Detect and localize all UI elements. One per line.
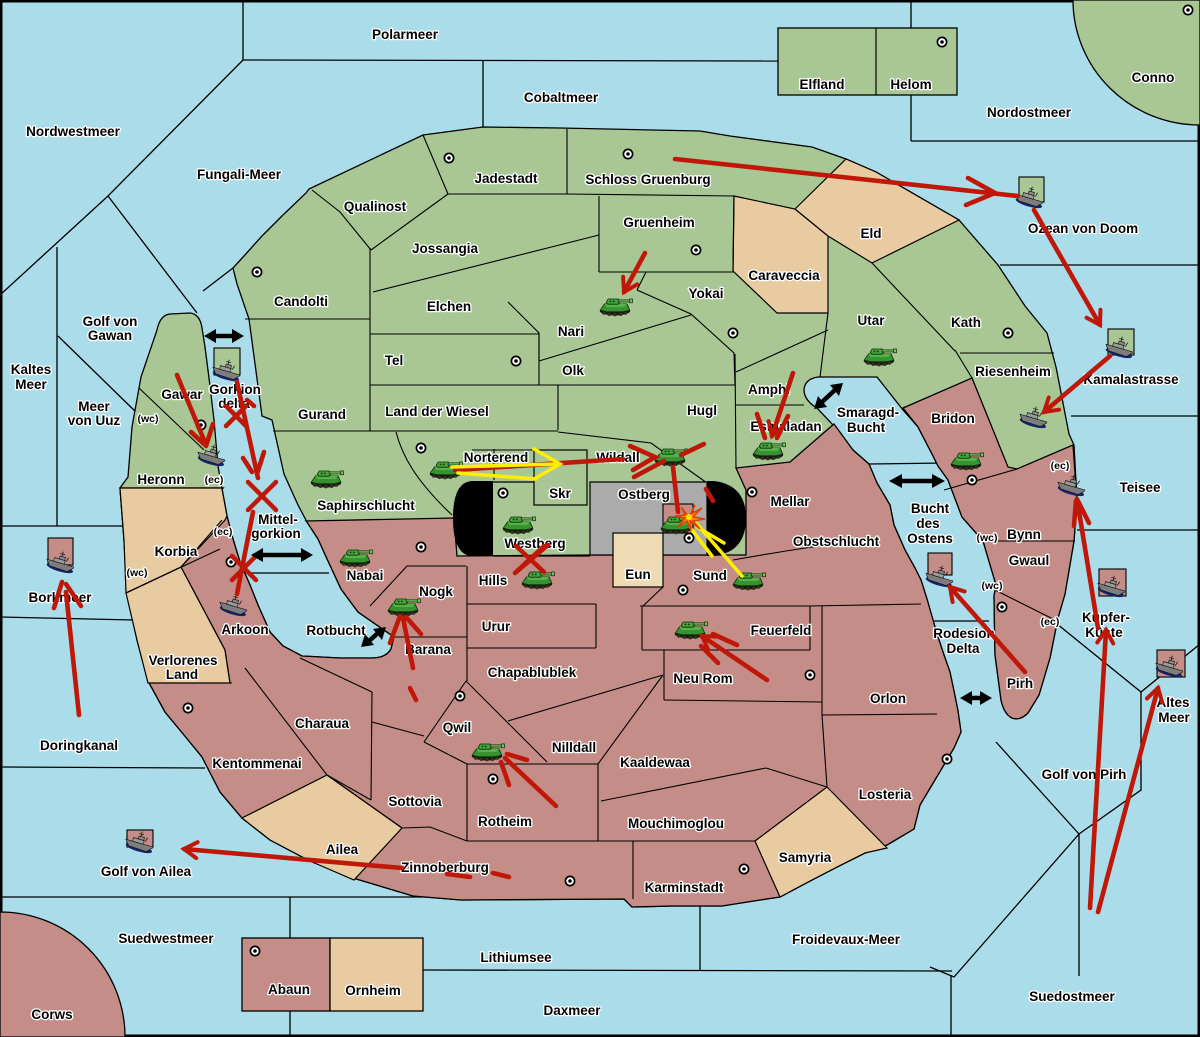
svg-text:Neu Rom: Neu Rom xyxy=(673,671,732,686)
svg-text:Bucht: Bucht xyxy=(911,501,950,516)
svg-text:gorkion: gorkion xyxy=(251,526,301,541)
svg-text:Schloss Gruenburg: Schloss Gruenburg xyxy=(585,172,710,187)
svg-text:Bucht: Bucht xyxy=(847,420,886,435)
svg-text:Hills: Hills xyxy=(479,573,508,588)
svg-text:Mouchimoglou: Mouchimoglou xyxy=(628,816,724,831)
svg-text:Ostberg: Ostberg xyxy=(618,487,670,502)
svg-text:Qualinost: Qualinost xyxy=(344,199,407,214)
svg-text:Ornheim: Ornheim xyxy=(345,983,401,998)
svg-text:Rotbucht: Rotbucht xyxy=(306,623,366,638)
svg-text:Samyria: Samyria xyxy=(779,850,832,865)
svg-text:Obstschlucht: Obstschlucht xyxy=(793,534,880,549)
svg-text:Saphirschlucht: Saphirschlucht xyxy=(317,498,415,513)
svg-text:Gawan: Gawan xyxy=(88,328,132,343)
svg-text:Skr: Skr xyxy=(549,486,572,501)
svg-text:Ostens: Ostens xyxy=(907,531,953,546)
svg-text:Jossangia: Jossangia xyxy=(412,241,479,256)
svg-text:Riesenheim: Riesenheim xyxy=(975,364,1051,379)
svg-text:Fungali-Meer: Fungali-Meer xyxy=(197,167,282,182)
svg-text:Charaua: Charaua xyxy=(295,716,350,731)
svg-text:Tel: Tel xyxy=(385,353,404,368)
svg-text:Verlorenes: Verlorenes xyxy=(148,653,217,668)
svg-text:(ec): (ec) xyxy=(214,526,233,538)
svg-text:Nordwestmeer: Nordwestmeer xyxy=(26,124,121,139)
svg-text:Nogk: Nogk xyxy=(419,584,453,599)
svg-text:Mellar: Mellar xyxy=(770,494,810,509)
svg-text:(wc): (wc) xyxy=(127,567,148,579)
svg-text:Elfland: Elfland xyxy=(799,77,844,92)
svg-text:Cobaltmeer: Cobaltmeer xyxy=(524,90,599,105)
svg-text:Zinnoberburg: Zinnoberburg xyxy=(401,860,489,875)
svg-text:Kath: Kath xyxy=(951,315,981,330)
svg-text:Doringkanal: Doringkanal xyxy=(40,738,118,753)
svg-text:Suedwestmeer: Suedwestmeer xyxy=(118,931,214,946)
svg-text:(wc): (wc) xyxy=(138,413,159,425)
svg-text:Urur: Urur xyxy=(482,619,511,634)
svg-text:Kentommenai: Kentommenai xyxy=(212,756,301,771)
svg-text:Bridon: Bridon xyxy=(931,411,975,426)
svg-text:Eun: Eun xyxy=(625,567,651,582)
svg-text:Conno: Conno xyxy=(1132,70,1175,85)
svg-text:des: des xyxy=(916,516,939,531)
svg-text:Eld: Eld xyxy=(860,226,881,241)
svg-text:Golf von Pirh: Golf von Pirh xyxy=(1042,767,1127,782)
svg-text:Golf von: Golf von xyxy=(83,314,138,329)
svg-text:Kupfer-: Kupfer- xyxy=(1082,610,1130,625)
svg-text:Land der Wiesel: Land der Wiesel xyxy=(385,404,488,419)
svg-text:(wc): (wc) xyxy=(977,532,998,544)
svg-text:Pirh: Pirh xyxy=(1007,676,1033,691)
svg-text:Bynn: Bynn xyxy=(1007,527,1041,542)
svg-text:Gruenheim: Gruenheim xyxy=(623,215,694,230)
svg-text:(ec): (ec) xyxy=(1051,460,1070,472)
svg-text:Sund: Sund xyxy=(693,568,727,583)
svg-text:Gwaul: Gwaul xyxy=(1009,553,1050,568)
svg-text:Gorkion: Gorkion xyxy=(209,382,261,397)
svg-text:Corws: Corws xyxy=(31,1007,72,1022)
svg-text:Losteria: Losteria xyxy=(859,787,912,802)
svg-text:Westberg: Westberg xyxy=(504,536,565,551)
svg-text:Froidevaux-Meer: Froidevaux-Meer xyxy=(792,932,901,947)
svg-text:Utar: Utar xyxy=(857,313,885,328)
svg-text:Jadestadt: Jadestadt xyxy=(474,171,538,186)
svg-text:Helom: Helom xyxy=(890,77,931,92)
svg-text:Nordostmeer: Nordostmeer xyxy=(987,105,1072,120)
svg-text:Nilldall: Nilldall xyxy=(552,740,596,755)
svg-text:(ec): (ec) xyxy=(205,474,224,486)
svg-text:Rotheim: Rotheim xyxy=(478,814,532,829)
svg-text:Kaaldewaa: Kaaldewaa xyxy=(620,755,690,770)
svg-text:Sottovia: Sottovia xyxy=(388,794,442,809)
svg-text:Elchen: Elchen xyxy=(427,299,471,314)
svg-text:(ec): (ec) xyxy=(1041,616,1060,628)
svg-text:Olk: Olk xyxy=(562,363,584,378)
svg-text:Candolti: Candolti xyxy=(274,294,328,309)
svg-text:Kamalastrasse: Kamalastrasse xyxy=(1083,372,1179,387)
svg-text:Qwil: Qwil xyxy=(443,720,472,735)
svg-text:Smaragd-: Smaragd- xyxy=(837,405,899,420)
svg-text:Daxmeer: Daxmeer xyxy=(543,1003,601,1018)
svg-text:Teisee: Teisee xyxy=(1119,480,1161,495)
svg-text:Nabai: Nabai xyxy=(347,568,384,583)
svg-text:Feuerfeld: Feuerfeld xyxy=(751,623,812,638)
svg-text:von Uuz: von Uuz xyxy=(68,413,121,428)
svg-text:Abaun: Abaun xyxy=(268,982,310,997)
svg-text:Yokai: Yokai xyxy=(688,286,723,301)
svg-text:Norterend: Norterend xyxy=(464,450,529,465)
svg-text:Polarmeer: Polarmeer xyxy=(372,27,439,42)
svg-text:Suedostmeer: Suedostmeer xyxy=(1029,989,1115,1004)
svg-text:Orlon: Orlon xyxy=(870,691,906,706)
svg-text:Arkoon: Arkoon xyxy=(221,622,268,637)
svg-text:Lithiumsee: Lithiumsee xyxy=(480,950,552,965)
svg-text:Meer: Meer xyxy=(1158,710,1190,725)
svg-text:Gurand: Gurand xyxy=(298,407,346,422)
svg-text:Karminstadt: Karminstadt xyxy=(645,880,724,895)
svg-text:Golf von Ailea: Golf von Ailea xyxy=(101,864,192,879)
svg-text:Hugl: Hugl xyxy=(687,403,717,418)
svg-text:Korbia: Korbia xyxy=(155,544,198,559)
svg-text:Meer: Meer xyxy=(15,377,47,392)
svg-text:Delta: Delta xyxy=(946,641,980,656)
svg-text:Meer: Meer xyxy=(78,399,110,414)
svg-text:Mittel-: Mittel- xyxy=(258,512,298,527)
svg-text:Caraveccia: Caraveccia xyxy=(748,268,820,283)
svg-text:Altes: Altes xyxy=(1156,695,1189,710)
svg-text:(wc): (wc) xyxy=(982,580,1003,592)
svg-text:Kaltes: Kaltes xyxy=(11,362,52,377)
svg-text:Ailea: Ailea xyxy=(326,842,359,857)
svg-text:Heronn: Heronn xyxy=(137,472,184,487)
svg-text:Land: Land xyxy=(166,667,198,682)
svg-text:Chapablublek: Chapablublek xyxy=(488,665,577,680)
svg-text:Nari: Nari xyxy=(558,324,584,339)
